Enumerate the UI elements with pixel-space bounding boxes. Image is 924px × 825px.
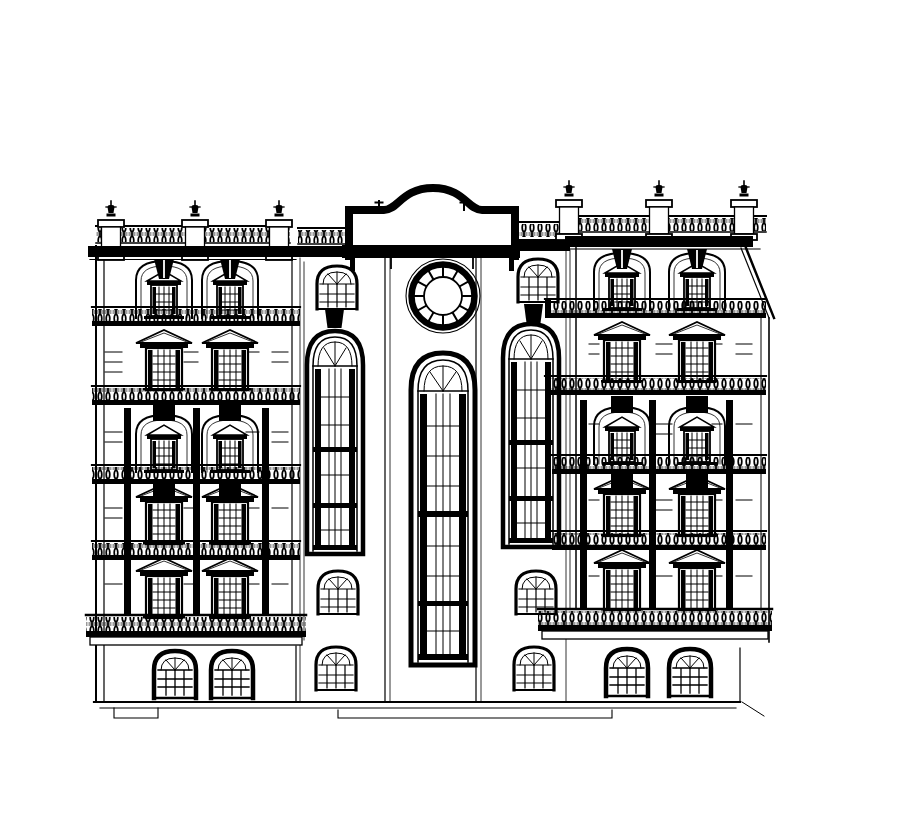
- ground-arched-window: [154, 651, 196, 698]
- ground-arched-window: [669, 649, 711, 696]
- left-tall-arched-window: [307, 331, 363, 554]
- parapet-pedestal: [731, 200, 757, 240]
- right-bay-lower-arched-window: [516, 571, 556, 614]
- gap-balustrade-left: [296, 228, 350, 257]
- ground-arched-window: [211, 651, 253, 698]
- central-tall-arched-window: [411, 353, 475, 665]
- right-tall-arched-window: [503, 324, 559, 547]
- building-elevation-drawing: [0, 0, 924, 825]
- right-bay-upper-arched-window: [518, 259, 558, 302]
- left-bay-ground-arched-window: [316, 647, 356, 690]
- right-bay-ground-arched-window: [514, 647, 554, 690]
- parapet-pedestal: [646, 200, 672, 240]
- keystone-right: [524, 304, 543, 323]
- drawing-canvas: [0, 0, 924, 825]
- left-bay-upper-arched-window: [317, 266, 357, 309]
- parapet-pedestal: [556, 200, 582, 240]
- left-bay-lower-arched-window: [318, 571, 358, 614]
- keystone-left: [325, 309, 344, 328]
- ground-arched-window: [606, 649, 648, 696]
